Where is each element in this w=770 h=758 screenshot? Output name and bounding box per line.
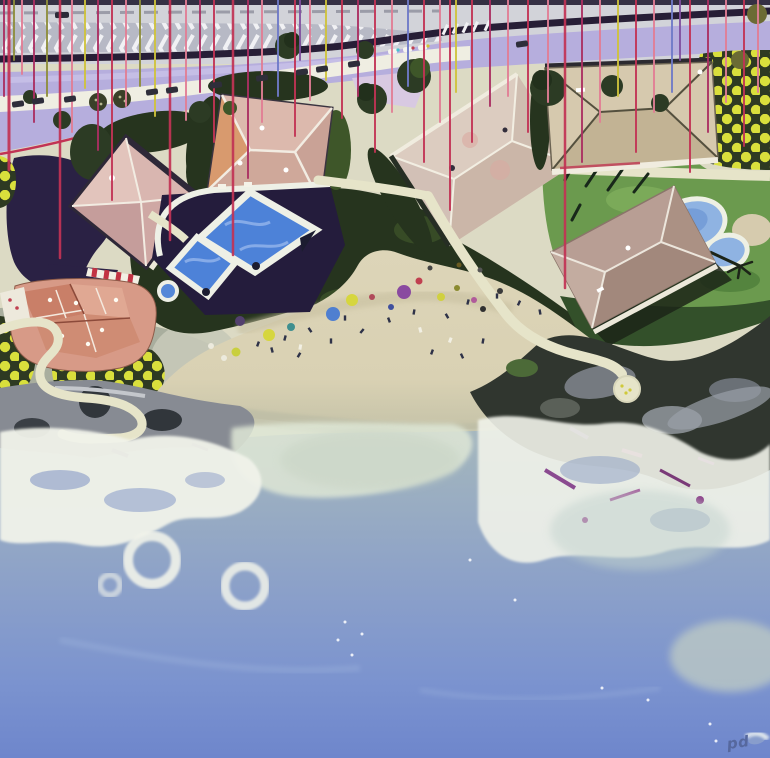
beach-umbrella [235, 316, 245, 326]
cliff-green-tuft [506, 359, 538, 377]
speckle [95, 99, 98, 102]
teal-shallow-patch [550, 490, 730, 570]
viewpoint-dot [624, 391, 627, 394]
beach-person [496, 293, 498, 298]
beach-umbrella [232, 348, 241, 357]
foam-gap [185, 472, 225, 488]
foam-speck [601, 687, 604, 690]
beach-umbrella [478, 268, 483, 273]
foam-speck [514, 599, 517, 602]
tree [357, 83, 375, 101]
tree [189, 101, 211, 123]
beach-umbrella [369, 294, 375, 300]
beach-umbrella [428, 266, 433, 271]
beach-umbrella [208, 343, 214, 349]
aerial-coast-painting: pd [0, 0, 770, 758]
speckle [119, 96, 122, 99]
dormer [86, 342, 90, 346]
dormer [100, 328, 104, 332]
dormer [114, 298, 118, 302]
tree [410, 58, 430, 78]
roof-vent [503, 128, 508, 133]
foam-speck [709, 723, 712, 726]
foam-gap [30, 470, 90, 490]
dormer [74, 301, 78, 305]
chimney [698, 70, 703, 75]
speckle [100, 103, 103, 106]
artist-signature: pd [725, 732, 751, 753]
beach-umbrella [388, 304, 394, 310]
mint-shallow-patch [280, 430, 460, 490]
beach-umbrella [416, 278, 423, 285]
beach-umbrella [497, 288, 503, 294]
roof-hatch [576, 88, 585, 93]
beach-umbrella [326, 307, 340, 321]
tree-speckled [113, 90, 131, 108]
tree [601, 75, 623, 97]
car-dark [55, 12, 69, 18]
foam-speck [715, 740, 718, 743]
tree [284, 32, 300, 48]
rock-dark [142, 409, 182, 431]
cliff-gray-patch [540, 398, 580, 418]
car-dot-cyan [396, 48, 399, 51]
viewpoint [614, 376, 640, 402]
beach-person [344, 315, 346, 320]
beach-umbrella [457, 263, 462, 268]
foam-speck [361, 633, 364, 636]
beach-umbrella [437, 293, 445, 301]
dormer [48, 298, 52, 302]
foam-speck [351, 654, 354, 657]
beach-umbrella [480, 306, 486, 312]
red-dot [15, 306, 19, 310]
viewpoint-dot [628, 388, 631, 391]
spa-pool [159, 282, 177, 300]
red-dot [8, 298, 12, 302]
viewpoint-dot [620, 384, 623, 387]
shadow-blob [202, 288, 210, 296]
foam-speck [647, 699, 650, 702]
chimney [260, 126, 265, 131]
shadow-blob [252, 262, 260, 270]
painting-canvas: pd [0, 0, 770, 758]
tree [223, 101, 237, 115]
foam-speck [344, 621, 347, 624]
beach-umbrella [221, 355, 227, 361]
beach-person [330, 338, 332, 343]
deck-step [244, 182, 252, 187]
chimney [284, 168, 289, 173]
foam-gap [104, 488, 176, 512]
foam-blue-patch [560, 456, 640, 484]
car-dot-red [411, 46, 414, 49]
chimney [626, 246, 631, 251]
deck-step [218, 184, 226, 189]
chimney [238, 161, 243, 166]
foam-speck [469, 559, 472, 562]
car-dot-yellow [426, 44, 429, 47]
beach-umbrella [287, 323, 295, 331]
tree-olive [731, 51, 749, 69]
roof-pink-patch [490, 160, 510, 180]
beach-umbrella [263, 329, 275, 341]
beach-umbrella [397, 285, 411, 299]
beach-umbrella [454, 285, 460, 291]
beach-umbrella [471, 297, 477, 303]
white-car [418, 44, 427, 50]
foam-speck [337, 639, 340, 642]
roof-pink-patch [462, 132, 478, 148]
tree [53, 111, 71, 129]
beach-umbrella [346, 294, 358, 306]
